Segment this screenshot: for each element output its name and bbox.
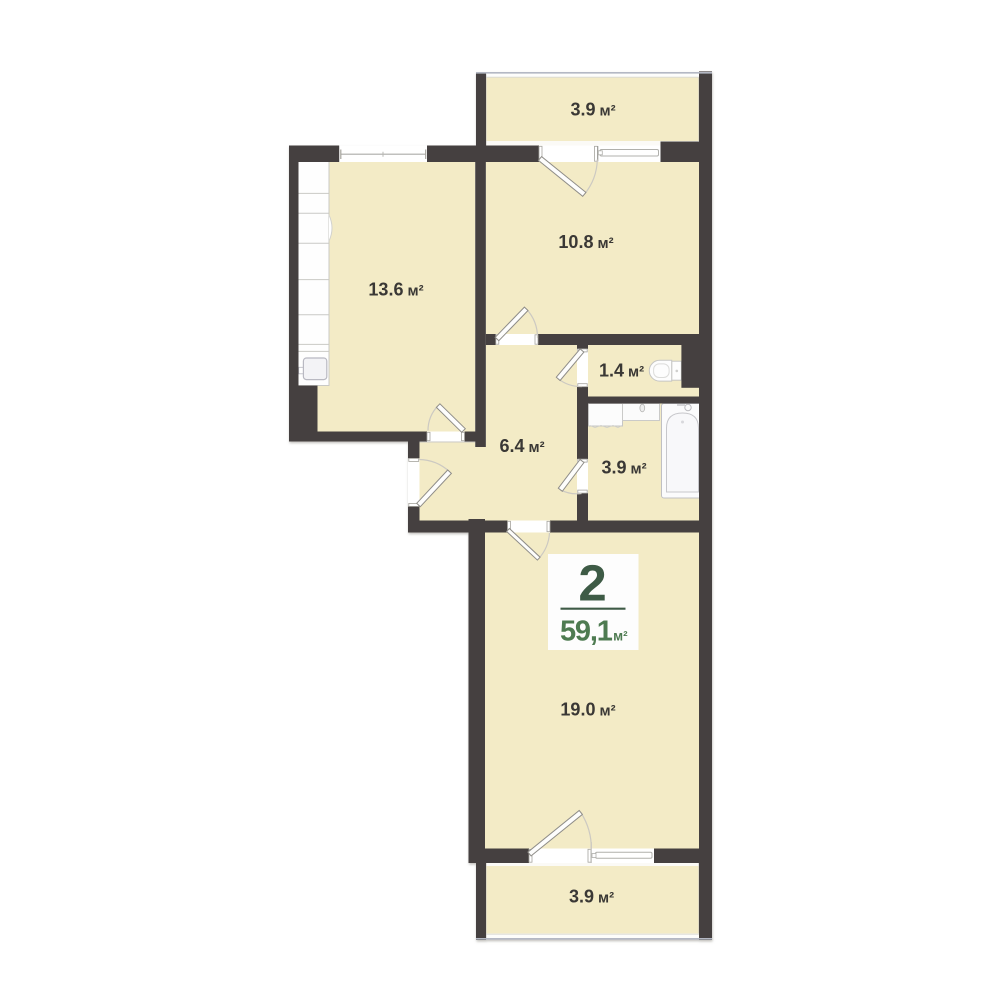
svg-text:2: 2: [578, 555, 606, 612]
svg-text:10.8м²: 10.8м²: [558, 232, 613, 252]
svg-text:3.9м²: 3.9м²: [570, 100, 615, 120]
svg-text:19.0м²: 19.0м²: [560, 700, 615, 720]
svg-text:6.4м²: 6.4м²: [499, 436, 544, 456]
svg-text:13.6м²: 13.6м²: [368, 280, 423, 300]
svg-text:1.4м²: 1.4м²: [599, 361, 644, 381]
svg-text:3.9м²: 3.9м²: [601, 458, 646, 478]
svg-text:3.9м²: 3.9м²: [569, 887, 614, 907]
